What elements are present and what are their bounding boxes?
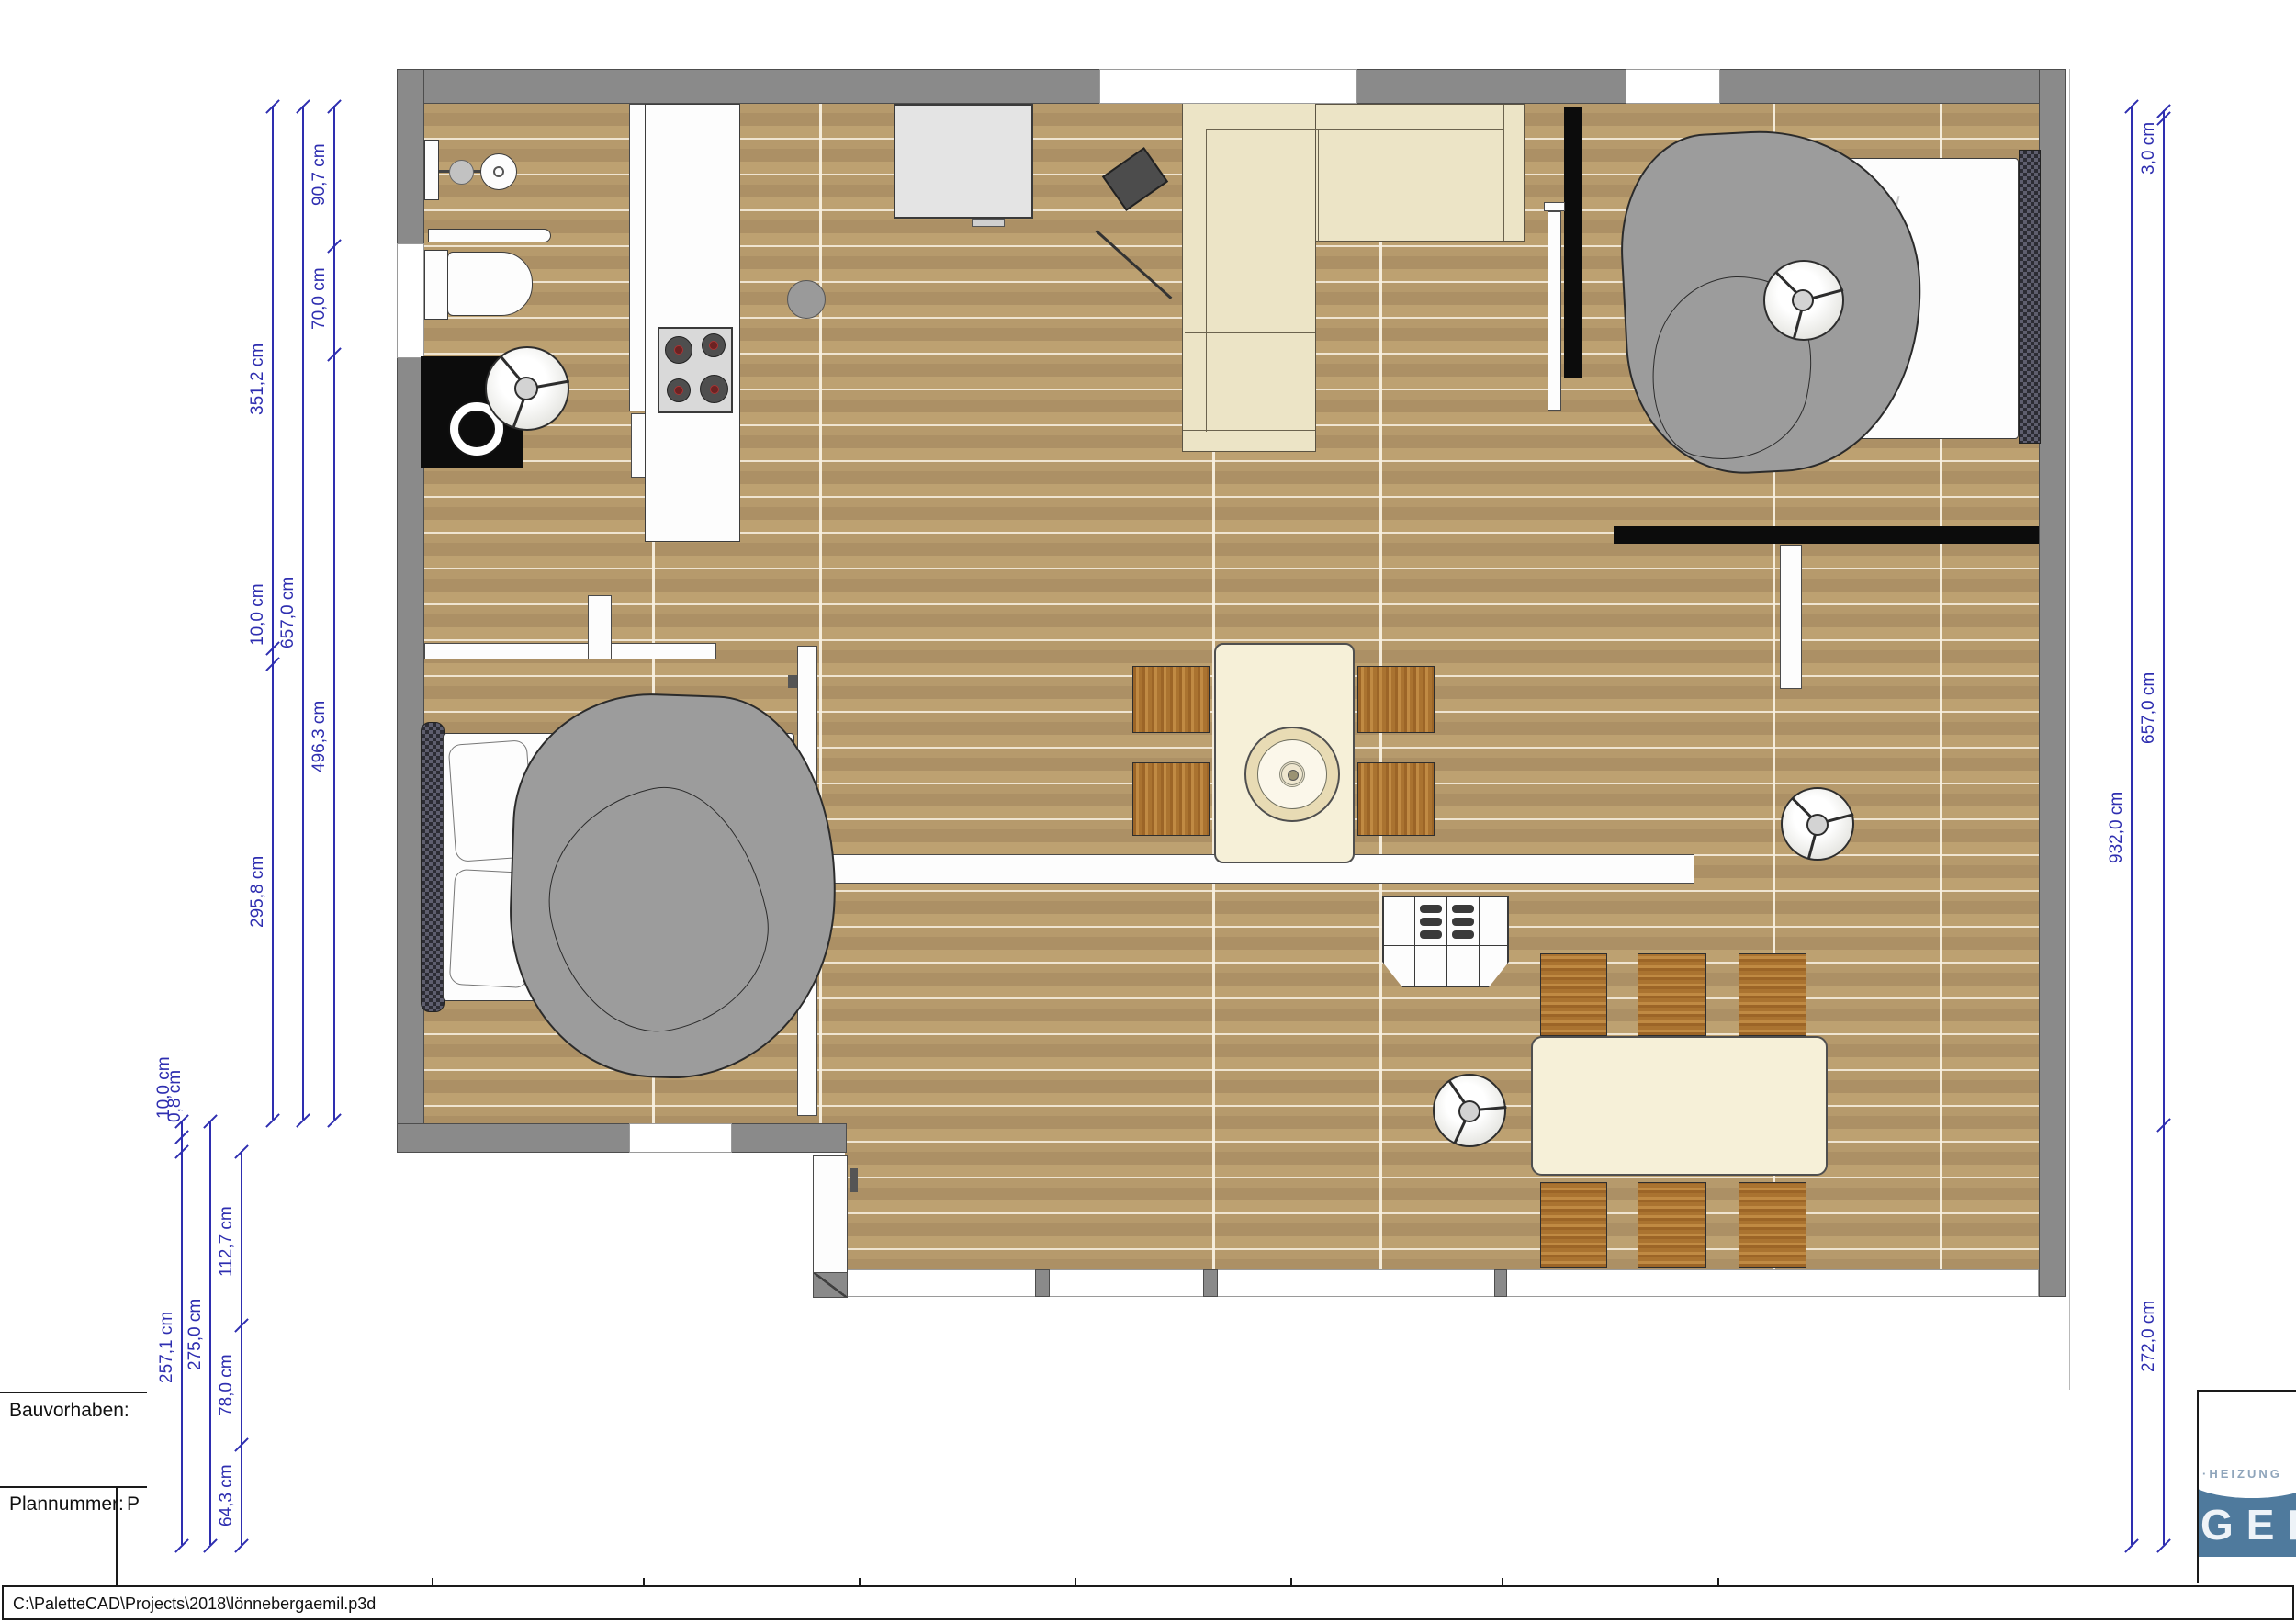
toilet-cistern	[424, 250, 448, 320]
chair-small-tr	[1357, 666, 1435, 733]
scale-tick	[1290, 1578, 1292, 1587]
sofa-cushion-div-3	[1185, 332, 1315, 333]
kitchen-stool	[787, 280, 826, 319]
dim-line-left-2	[302, 106, 304, 1120]
tv-sideboard	[894, 104, 1033, 219]
wall-bedroom-top	[424, 643, 716, 659]
sofa-armrest-bottom	[1183, 430, 1315, 431]
dim-label-351: 351,2 cm	[248, 344, 268, 415]
dining-table-large	[1531, 1036, 1828, 1176]
sofa-back-line	[1206, 129, 1503, 130]
bathroom-shelf	[428, 229, 551, 242]
wall-right	[2039, 69, 2066, 1297]
dim-line-right-1	[2131, 106, 2133, 1545]
window-top-2	[1626, 69, 1720, 104]
dim-label-78: 78,0 cm	[217, 1354, 237, 1416]
plannummer-value: P	[127, 1493, 140, 1516]
bedroom-door-leaf	[588, 595, 612, 659]
front-door-leaf	[813, 1155, 848, 1273]
wall-black-vertical	[1564, 107, 1582, 378]
titleblock-line-1	[0, 1392, 147, 1393]
window-top-1	[1099, 69, 1357, 104]
status-bar: C:\PaletteCAD\Projects\2018\lönnebergaem…	[2, 1585, 2294, 1620]
titleblock-line-2	[0, 1486, 147, 1488]
wall-black-horizontal	[1614, 526, 2039, 544]
vent-cabinet	[1382, 896, 1509, 987]
dining-centerpiece-dot	[1288, 770, 1299, 781]
company-logo: ·HEIZUNG GER	[2199, 1456, 2296, 1557]
bed1-headboard	[421, 722, 445, 1012]
ceiling-lamp-dining	[1433, 1074, 1506, 1147]
stove	[658, 327, 733, 413]
dim-label-657l: 657,0 cm	[278, 577, 298, 648]
chair-large-t2	[1638, 953, 1706, 1036]
ceiling-lamp-bathroom	[485, 346, 569, 431]
chair-small-tl	[1132, 666, 1210, 733]
dim-line-right-2	[2163, 110, 2165, 1545]
sofa-armrest-right	[1503, 105, 1504, 241]
logo-box-top-border	[2197, 1390, 2296, 1392]
bedroom2-door-leaf	[1548, 211, 1561, 411]
dim-label-3: 3,0 cm	[2139, 122, 2159, 175]
plan-frame-edge	[2069, 69, 2070, 1390]
dim-line-left-1	[272, 106, 274, 1120]
wall-post-1	[1035, 1269, 1050, 1297]
dim-label-275: 275,0 cm	[186, 1299, 206, 1370]
window-left	[397, 243, 424, 358]
dim-label-08: 0,8 cm	[165, 1070, 186, 1122]
dim-label-272: 272,0 cm	[2139, 1301, 2159, 1372]
palettecad-plan-sheet: 351,2 cm 10,0 cm 295,8 cm 657,0 cm 90,7 …	[0, 0, 2296, 1623]
dim-label-657r: 657,0 cm	[2139, 672, 2159, 744]
wall-bathroom	[629, 104, 646, 411]
window-bedroom-bottom	[629, 1123, 732, 1153]
ceiling-lamp-bedroom2	[1763, 260, 1844, 341]
tv-sideboard-foot	[972, 219, 1005, 227]
sofa-cushion-div-1	[1318, 129, 1319, 242]
dim-label-70: 70,0 cm	[310, 267, 330, 330]
dim-line-low-1	[181, 1121, 183, 1545]
scale-tick	[643, 1578, 645, 1587]
logo-text-heizung: ·HEIZUNG	[2202, 1467, 2282, 1481]
dim-label-496: 496,3 cm	[310, 701, 330, 772]
dim-label-64: 64,3 cm	[217, 1464, 237, 1527]
bedroom2-door-frame	[1544, 202, 1565, 211]
wall-post-2	[1203, 1269, 1218, 1297]
chair-large-b2	[1638, 1182, 1706, 1268]
chair-large-t3	[1739, 953, 1806, 1036]
chair-small-bl	[1132, 762, 1210, 836]
sink-drain	[493, 166, 504, 177]
outside-area	[422, 1153, 845, 1272]
bauvorhaben-label: Bauvorhaben:	[9, 1400, 129, 1422]
wall-bedroom-bottom	[397, 1123, 847, 1153]
logo-text-ger: GER	[2200, 1500, 2296, 1550]
scale-tick	[859, 1578, 861, 1587]
sofa-cushion-div-2	[1412, 129, 1412, 242]
chair-large-b3	[1739, 1182, 1806, 1268]
dim-line-low-3	[241, 1151, 242, 1545]
wall-post-3	[1494, 1269, 1507, 1297]
sink-knob	[449, 160, 474, 185]
closet-door-leaf	[1780, 545, 1802, 689]
scale-tick	[1075, 1578, 1076, 1587]
dim-label-932: 932,0 cm	[2107, 792, 2127, 863]
dim-label-90: 90,7 cm	[310, 143, 330, 206]
wall-corner-post	[813, 1272, 848, 1298]
toilet-bowl	[447, 252, 533, 316]
dim-label-295: 295,8 cm	[248, 856, 268, 928]
ceiling-lamp-hall	[1781, 787, 1854, 861]
chair-large-b1	[1540, 1182, 1607, 1268]
dim-label-112: 112,7 cm	[217, 1206, 237, 1277]
plannummer-label: Plannummer:	[9, 1493, 124, 1516]
dim-label-10a: 10,0 cm	[248, 583, 268, 646]
sink-wall-bracket	[424, 140, 439, 200]
sofa-vertical	[1182, 104, 1316, 452]
window-bottom-strip	[845, 1269, 2039, 1297]
chair-small-br	[1357, 762, 1435, 836]
scale-tick	[432, 1578, 433, 1587]
chair-large-t1	[1540, 953, 1607, 1036]
hall-wall-handle-1	[788, 675, 797, 688]
dim-label-257: 257,1 cm	[157, 1312, 177, 1383]
sofa-back-line-left	[1206, 129, 1207, 432]
dim-line-left-3	[333, 106, 335, 1120]
dim-line-low-2	[209, 1121, 211, 1545]
file-path: C:\PaletteCAD\Projects\2018\lönnebergaem…	[13, 1595, 376, 1614]
scale-tick	[1717, 1578, 1719, 1587]
kitchen-counter	[645, 104, 740, 542]
front-door-handle	[850, 1168, 858, 1192]
bed2-headboard	[2019, 150, 2041, 444]
scale-tick	[1502, 1578, 1503, 1587]
